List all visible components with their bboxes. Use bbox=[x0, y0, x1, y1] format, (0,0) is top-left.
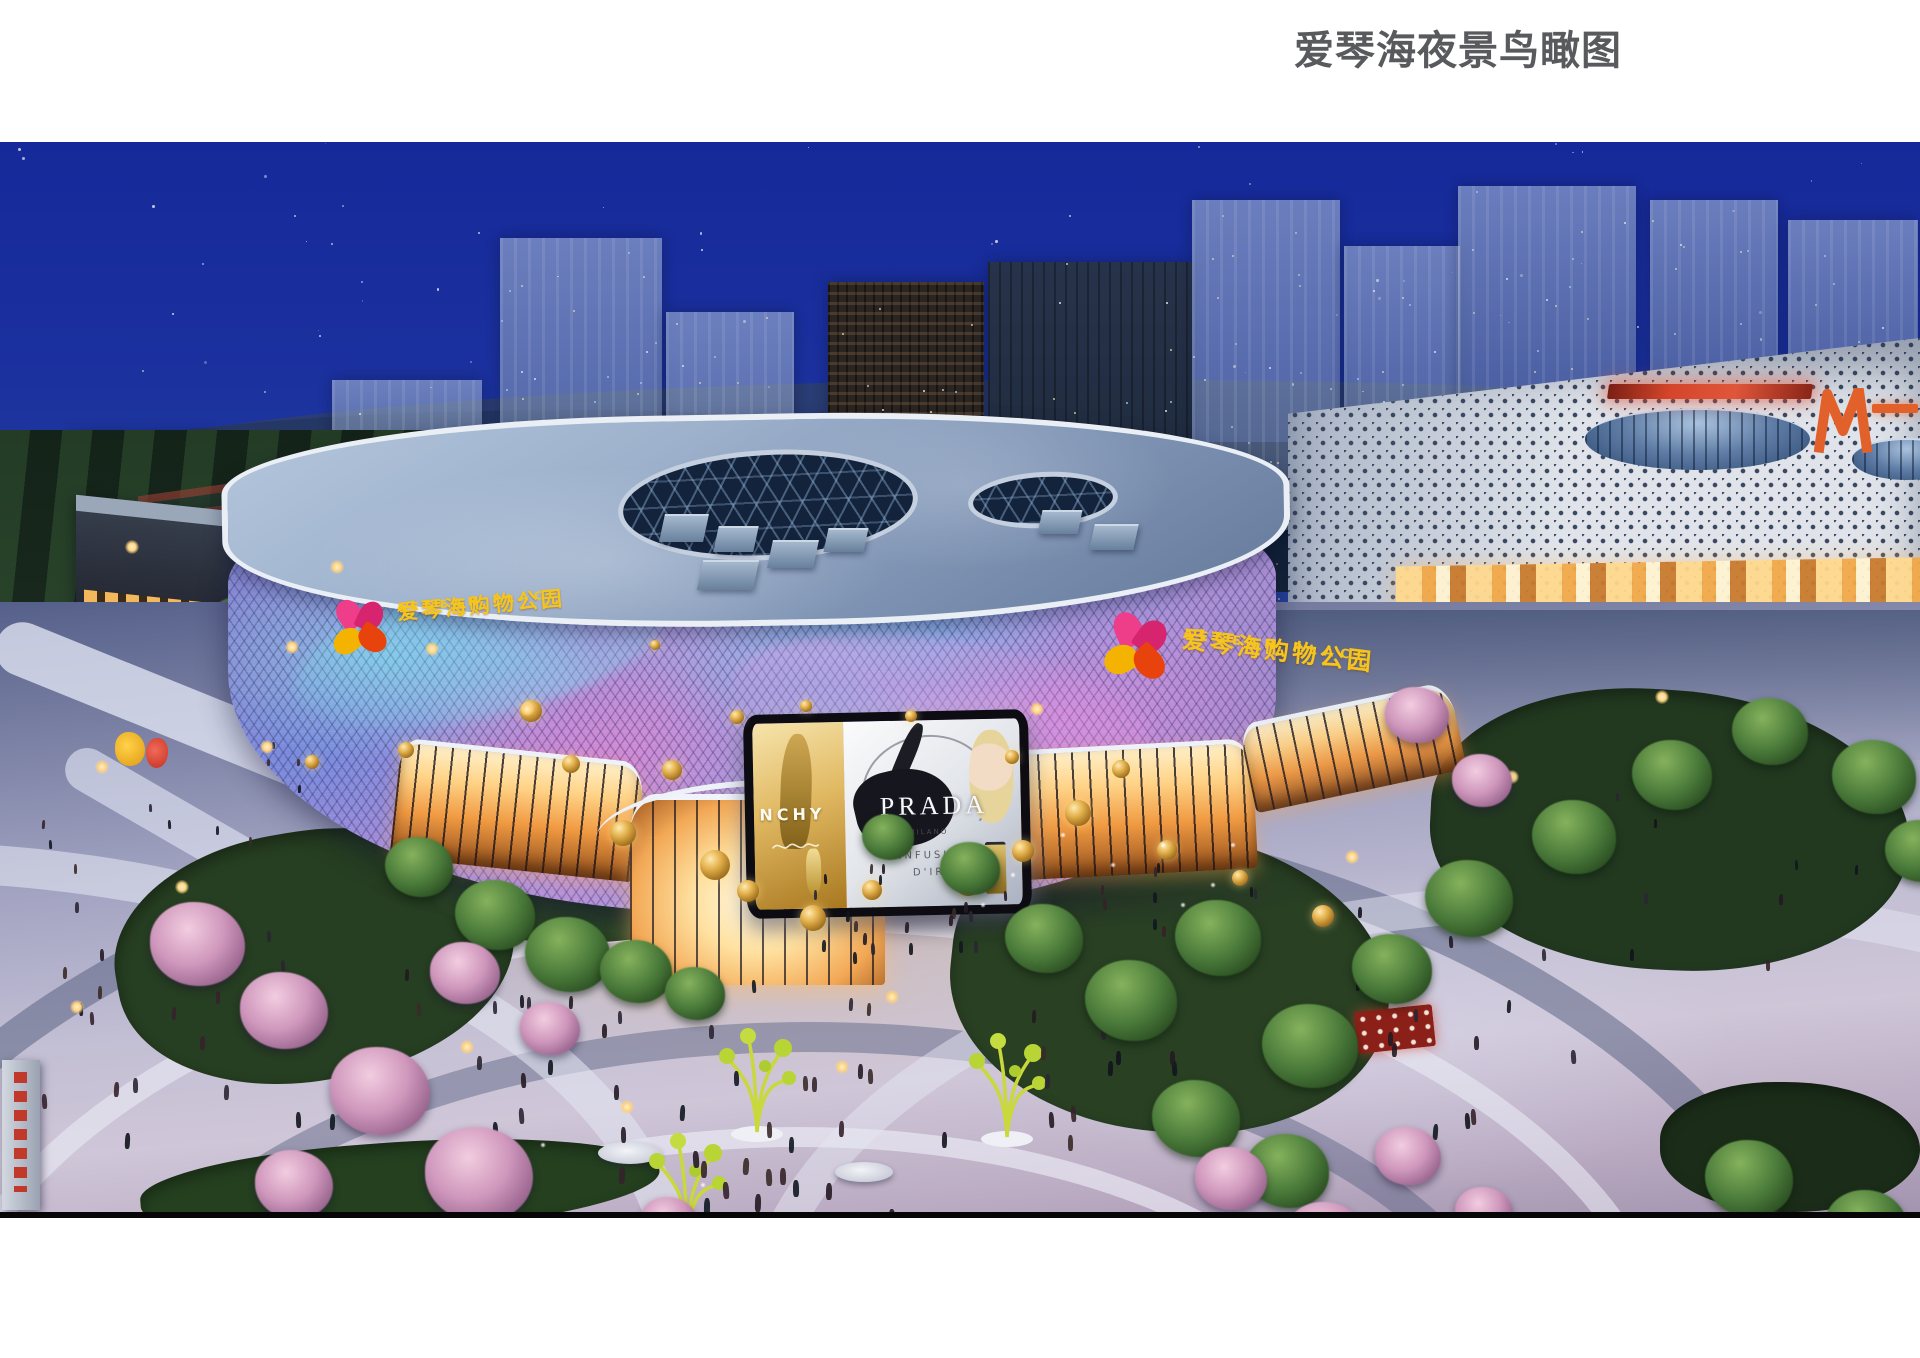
presentation-board: 爱琴海夜景鸟瞰图 bbox=[0, 0, 1920, 1358]
blossom-tree bbox=[520, 1002, 580, 1055]
blossom-tree bbox=[1455, 1187, 1513, 1212]
green-tree bbox=[1085, 960, 1177, 1041]
green-tree bbox=[385, 837, 453, 897]
foreground-trees bbox=[0, 142, 1920, 1212]
green-tree bbox=[1732, 698, 1808, 765]
green-tree bbox=[1632, 740, 1712, 810]
blossom-tree bbox=[425, 1127, 533, 1212]
green-tree bbox=[862, 814, 914, 860]
blossom-tree bbox=[330, 1047, 430, 1135]
green-tree bbox=[1175, 900, 1261, 976]
green-tree bbox=[1532, 800, 1616, 874]
drawing-title: 爱琴海夜景鸟瞰图 bbox=[1294, 18, 1622, 76]
blossom-tree bbox=[640, 1197, 698, 1212]
green-tree bbox=[1832, 740, 1916, 814]
green-tree bbox=[1005, 904, 1083, 973]
green-tree bbox=[665, 967, 725, 1020]
green-tree bbox=[1425, 860, 1513, 937]
green-tree bbox=[455, 880, 535, 950]
blossom-tree bbox=[430, 942, 500, 1004]
green-tree bbox=[1262, 1004, 1358, 1088]
blossom-tree bbox=[150, 902, 245, 986]
green-tree bbox=[1705, 1140, 1793, 1212]
rendering: NCHY PRADA MILANO INFUSION D'IRIS bbox=[0, 142, 1920, 1212]
green-tree bbox=[1825, 1190, 1907, 1212]
green-tree bbox=[940, 842, 1000, 895]
green-tree bbox=[1152, 1080, 1240, 1157]
blossom-tree bbox=[255, 1150, 333, 1212]
green-tree bbox=[1885, 820, 1920, 882]
blossom-tree bbox=[1375, 1127, 1441, 1185]
green-tree bbox=[525, 917, 610, 992]
blossom-tree bbox=[1195, 1147, 1267, 1210]
image-bottom-bar bbox=[0, 1212, 1920, 1218]
blossom-tree bbox=[1452, 754, 1512, 807]
green-tree bbox=[1352, 934, 1432, 1004]
green-tree bbox=[600, 940, 672, 1003]
blossom-tree bbox=[240, 972, 328, 1049]
blossom-tree bbox=[1385, 687, 1449, 743]
